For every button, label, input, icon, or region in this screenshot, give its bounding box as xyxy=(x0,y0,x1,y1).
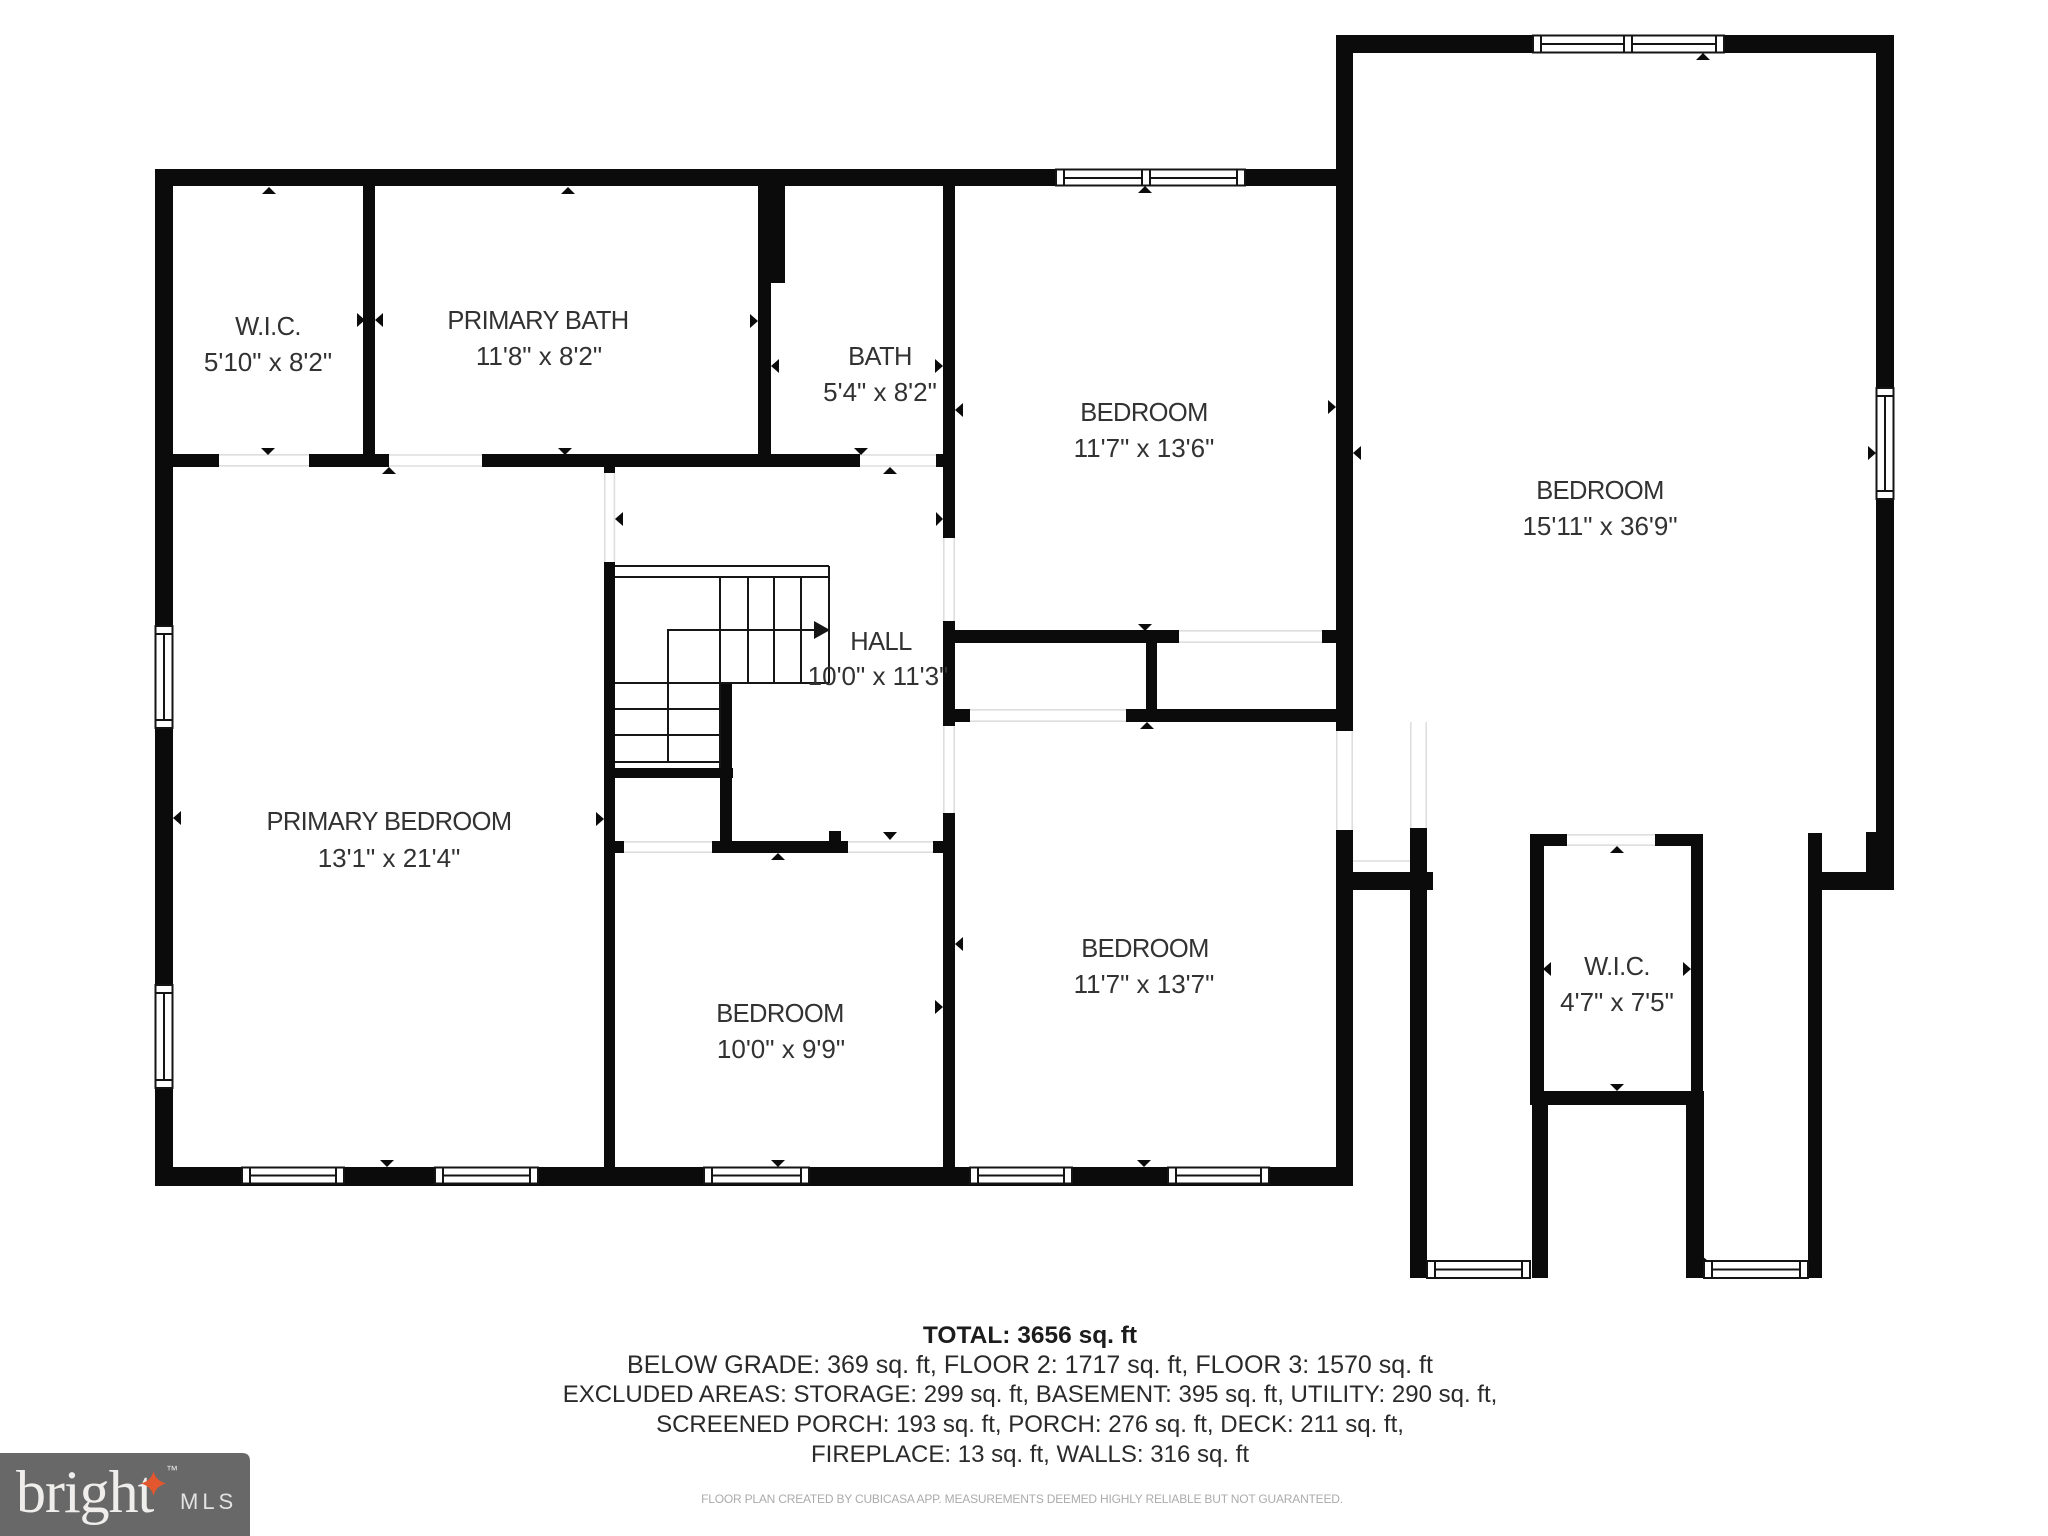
svg-text:BEDROOM: BEDROOM xyxy=(1080,399,1208,427)
svg-text:MLS: MLS xyxy=(180,1489,237,1514)
svg-text:SCREENED PORCH: 193 sq. ft, PO: SCREENED PORCH: 193 sq. ft, PORCH: 276 s… xyxy=(656,1411,1404,1438)
svg-text:BELOW GRADE: 369 sq. ft, FLOOR: BELOW GRADE: 369 sq. ft, FLOOR 2: 1717 s… xyxy=(627,1351,1433,1379)
svg-text:11'8" x 8'2": 11'8" x 8'2" xyxy=(476,341,602,371)
svg-text:11'7" x 13'6": 11'7" x 13'6" xyxy=(1074,433,1215,463)
svg-text:11'7" x 13'7": 11'7" x 13'7" xyxy=(1074,969,1215,999)
svg-text:W.I.C.: W.I.C. xyxy=(235,313,301,341)
svg-text:HALL: HALL xyxy=(850,628,912,656)
svg-text:13'1" x 21'4": 13'1" x 21'4" xyxy=(318,843,461,873)
svg-text:FLOOR PLAN CREATED BY CUBICASA: FLOOR PLAN CREATED BY CUBICASA APP. MEAS… xyxy=(701,1492,1343,1506)
svg-text:BEDROOM: BEDROOM xyxy=(1536,477,1664,505)
svg-text:10'0" x 9'9": 10'0" x 9'9" xyxy=(717,1034,845,1064)
svg-text:EXCLUDED AREAS: STORAGE: 299 s: EXCLUDED AREAS: STORAGE: 299 sq. ft, BAS… xyxy=(563,1381,1498,1408)
svg-text:15'11" x 36'9": 15'11" x 36'9" xyxy=(1522,511,1677,541)
svg-text:10'0" x 11'3": 10'0" x 11'3" xyxy=(808,661,949,691)
svg-text:4'7" x 7'5": 4'7" x 7'5" xyxy=(1560,987,1674,1017)
svg-text:5'10" x 8'2": 5'10" x 8'2" xyxy=(204,347,332,377)
svg-text:bright: bright xyxy=(16,1459,155,1525)
svg-text:PRIMARY BEDROOM: PRIMARY BEDROOM xyxy=(266,808,511,836)
svg-text:™: ™ xyxy=(166,1463,178,1477)
svg-text:BEDROOM: BEDROOM xyxy=(1081,935,1209,963)
svg-text:FIREPLACE: 13 sq. ft, WALLS: 3: FIREPLACE: 13 sq. ft, WALLS: 316 sq. ft xyxy=(811,1441,1249,1468)
svg-text:BATH: BATH xyxy=(848,343,912,371)
svg-text:5'4" x 8'2": 5'4" x 8'2" xyxy=(823,377,937,407)
svg-text:BEDROOM: BEDROOM xyxy=(716,1000,844,1028)
svg-text:PRIMARY BATH: PRIMARY BATH xyxy=(447,307,628,335)
svg-text:W.I.C.: W.I.C. xyxy=(1584,953,1650,981)
svg-text:TOTAL: 3656 sq. ft: TOTAL: 3656 sq. ft xyxy=(923,1322,1137,1349)
